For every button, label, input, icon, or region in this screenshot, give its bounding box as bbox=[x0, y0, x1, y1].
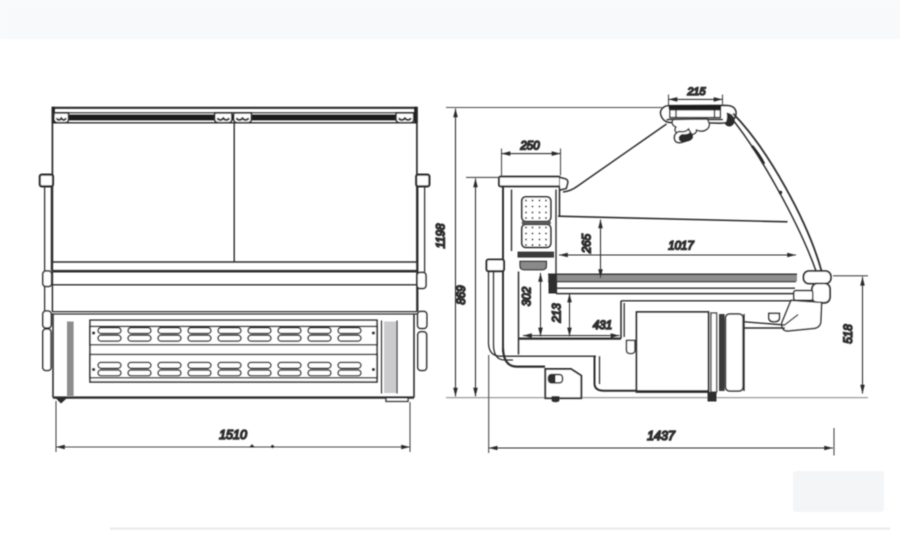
svg-text:1198: 1198 bbox=[436, 223, 448, 248]
svg-text:431: 431 bbox=[593, 320, 612, 332]
svg-text:265: 265 bbox=[582, 233, 594, 254]
svg-text:869: 869 bbox=[456, 285, 468, 305]
svg-text:250: 250 bbox=[519, 141, 540, 153]
svg-text:1437: 1437 bbox=[647, 429, 676, 443]
svg-text:518: 518 bbox=[843, 324, 855, 344]
svg-text:215: 215 bbox=[686, 86, 706, 98]
svg-text:1017: 1017 bbox=[668, 241, 694, 253]
svg-text:213: 213 bbox=[552, 303, 564, 324]
svg-text:1510: 1510 bbox=[219, 428, 247, 442]
svg-text:302: 302 bbox=[522, 286, 534, 306]
